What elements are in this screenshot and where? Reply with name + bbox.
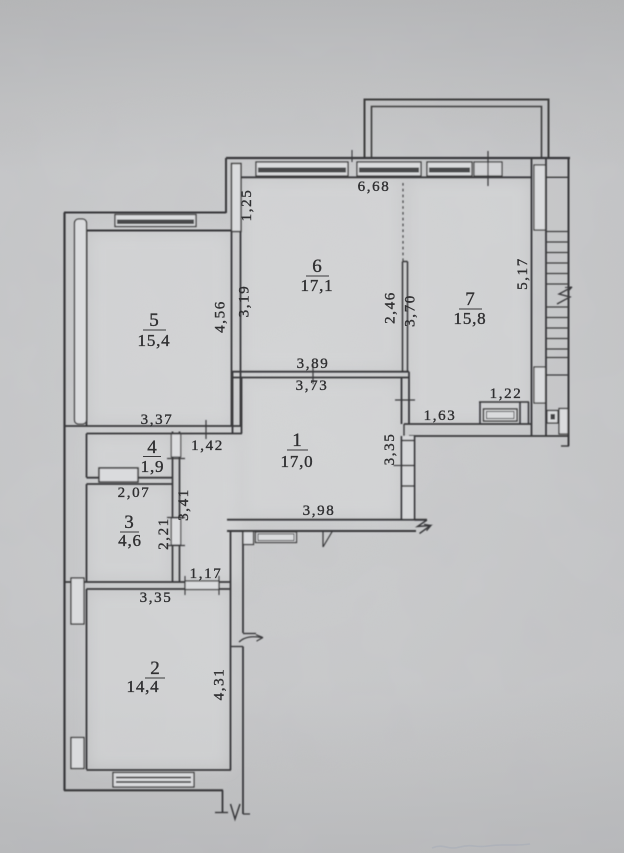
svg-text:3,73: 3,73 bbox=[296, 378, 329, 394]
svg-text:17,0: 17,0 bbox=[281, 452, 314, 471]
svg-text:6,68: 6,68 bbox=[358, 179, 391, 195]
svg-text:15,8: 15,8 bbox=[454, 309, 487, 328]
svg-text:3,89: 3,89 bbox=[297, 356, 330, 372]
svg-text:1,25: 1,25 bbox=[239, 189, 255, 222]
svg-text:1,42: 1,42 bbox=[191, 438, 224, 454]
svg-text:2,21: 2,21 bbox=[156, 517, 172, 550]
svg-text:1,63: 1,63 bbox=[424, 408, 457, 424]
svg-text:4,6: 4,6 bbox=[118, 531, 142, 550]
svg-text:1,17: 1,17 bbox=[190, 566, 223, 582]
svg-text:14,4: 14,4 bbox=[127, 677, 160, 696]
svg-text:5,17: 5,17 bbox=[515, 257, 531, 290]
svg-text:1: 1 bbox=[292, 430, 302, 451]
svg-text:3,70: 3,70 bbox=[403, 294, 419, 327]
svg-text:6: 6 bbox=[312, 256, 322, 277]
svg-text:3,35: 3,35 bbox=[140, 590, 173, 606]
svg-text:4,56: 4,56 bbox=[213, 300, 229, 333]
svg-text:7: 7 bbox=[465, 289, 475, 310]
svg-text:4: 4 bbox=[147, 437, 157, 458]
svg-text:2,07: 2,07 bbox=[118, 485, 151, 501]
svg-text:3,41: 3,41 bbox=[176, 488, 192, 521]
svg-text:3,98: 3,98 bbox=[303, 503, 336, 519]
svg-text:17,1: 17,1 bbox=[301, 276, 334, 295]
svg-text:1,9: 1,9 bbox=[141, 457, 165, 476]
svg-text:3,35: 3,35 bbox=[382, 433, 398, 466]
svg-text:2,46: 2,46 bbox=[383, 291, 399, 324]
svg-text:15,4: 15,4 bbox=[138, 331, 171, 350]
svg-text:2: 2 bbox=[150, 658, 160, 679]
svg-text:3,19: 3,19 bbox=[237, 285, 253, 318]
svg-text:3,37: 3,37 bbox=[141, 412, 174, 428]
svg-text:4,31: 4,31 bbox=[212, 668, 228, 701]
svg-text:3: 3 bbox=[124, 512, 134, 533]
svg-text:1,22: 1,22 bbox=[490, 386, 523, 402]
svg-text:5: 5 bbox=[149, 310, 159, 331]
